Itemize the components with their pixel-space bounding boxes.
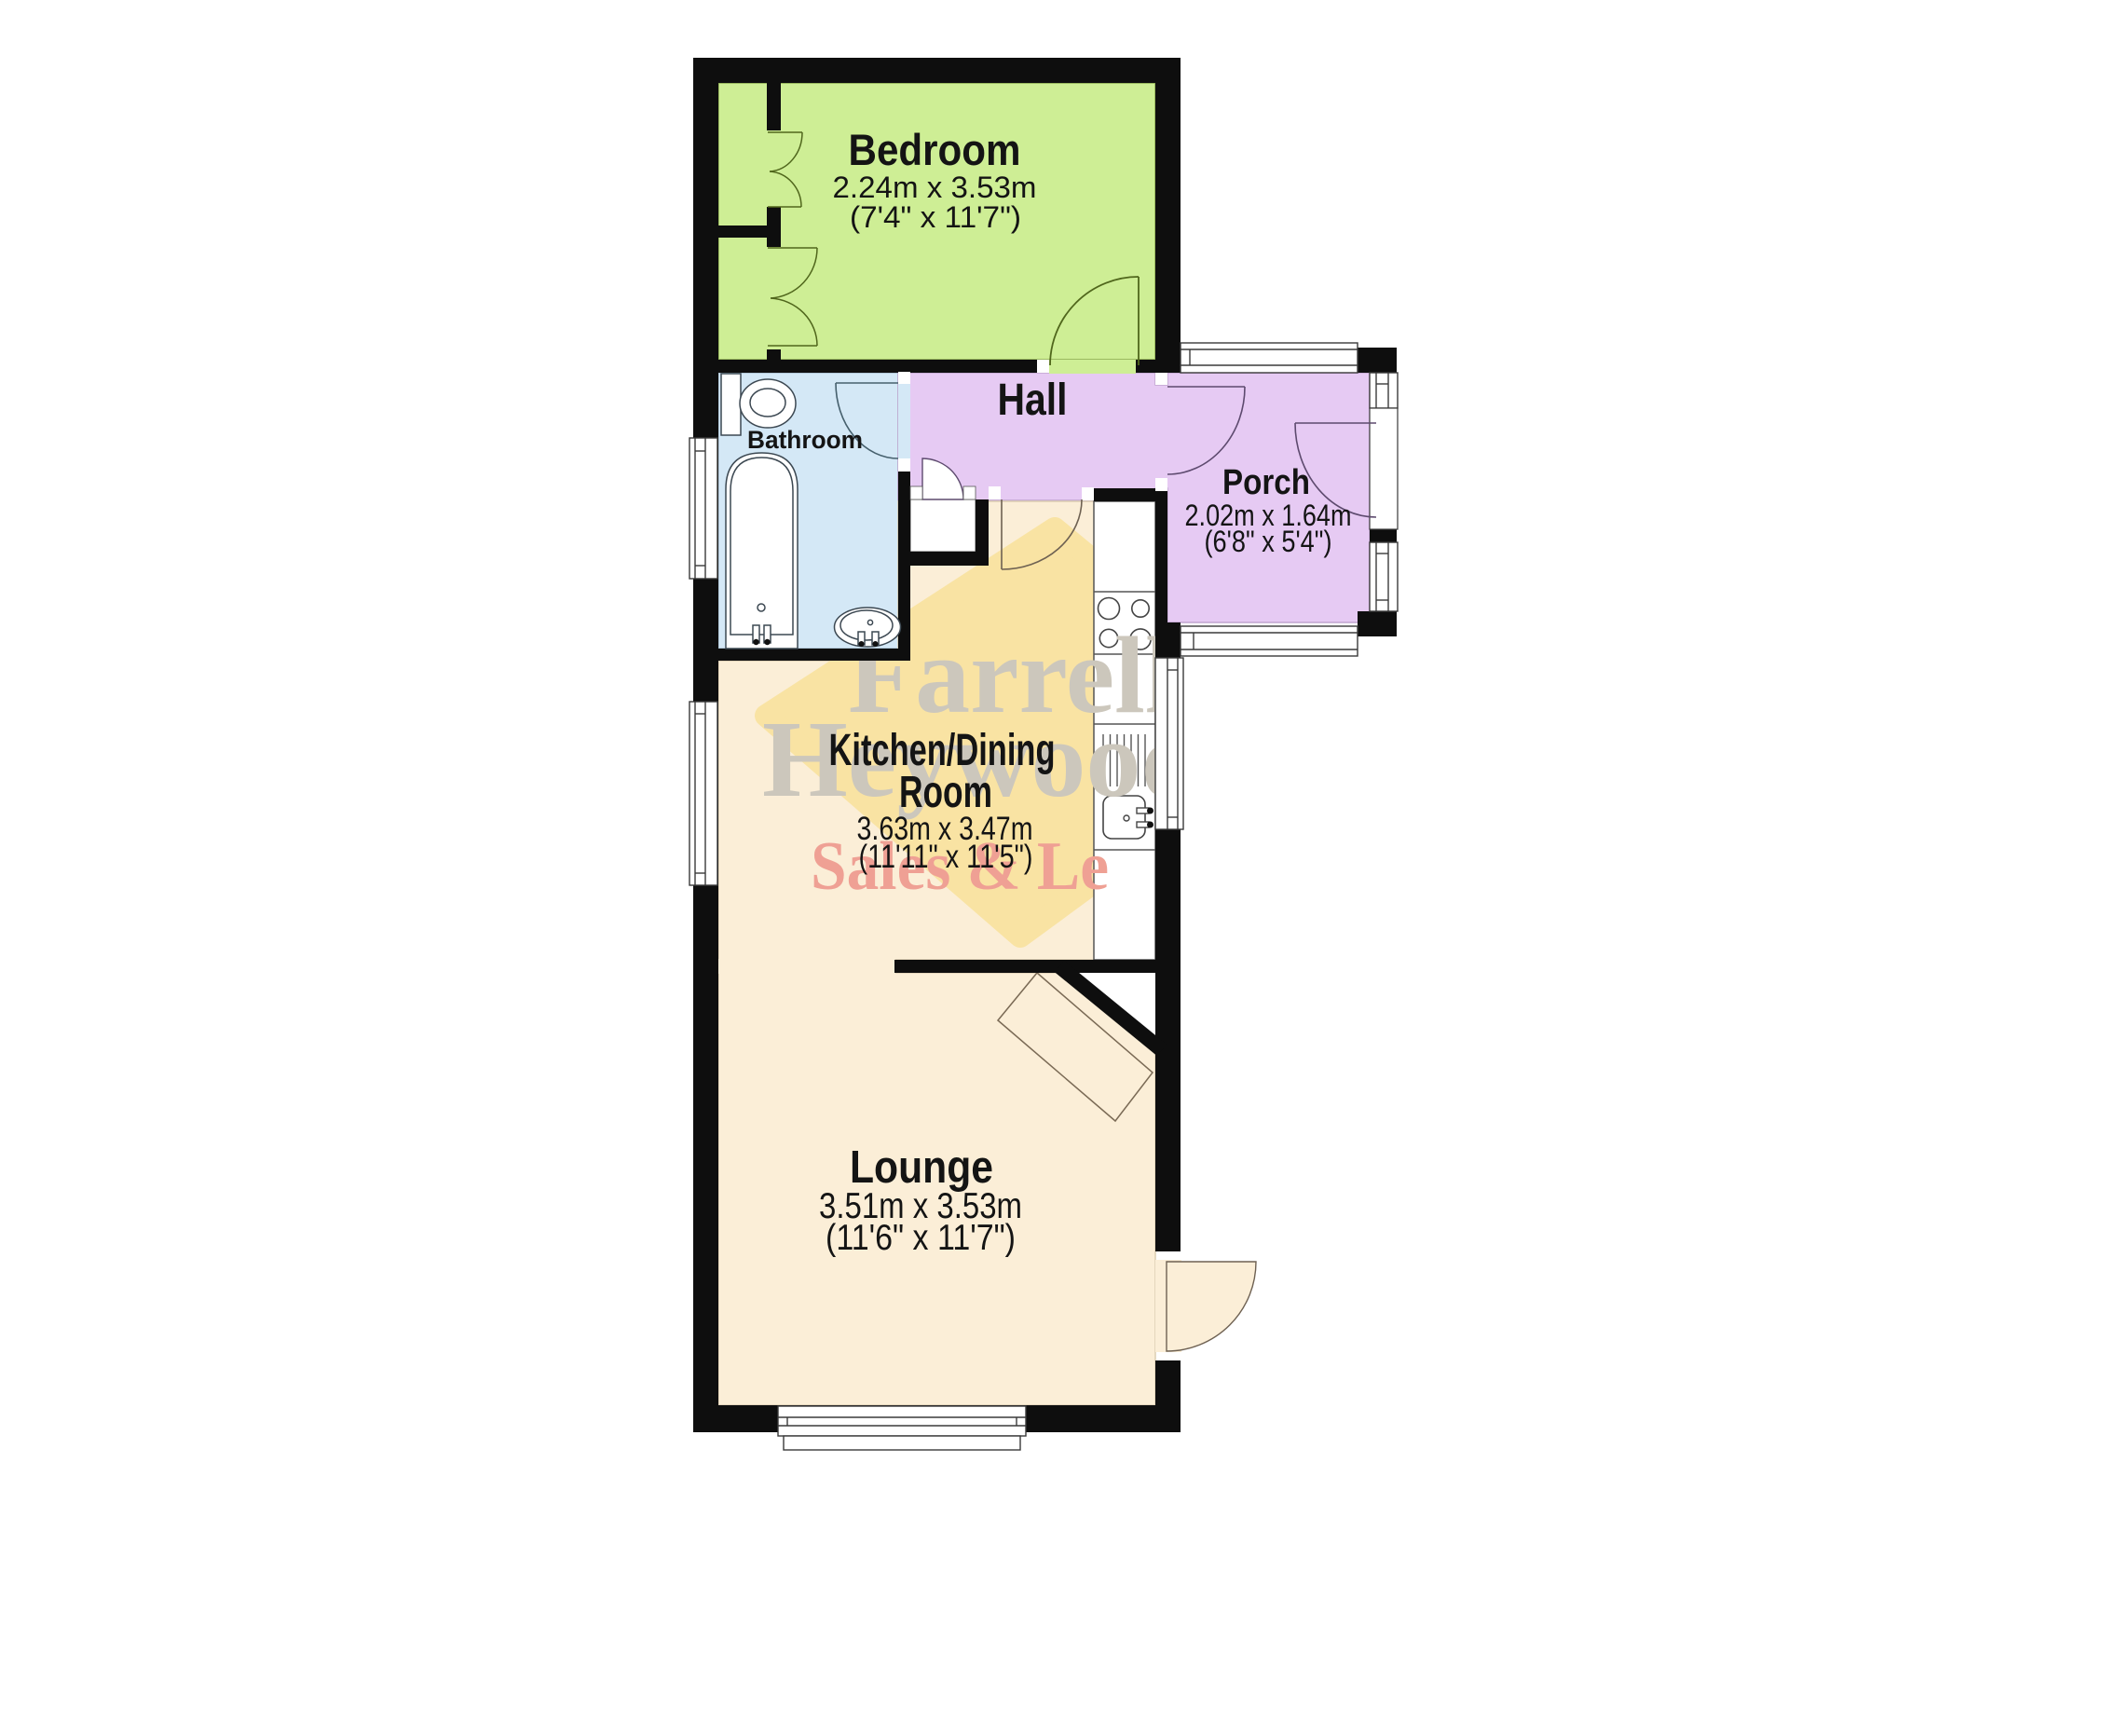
svg-text:Bedroom: Bedroom [849, 125, 1021, 174]
svg-text:Bathroom: Bathroom [747, 426, 863, 454]
svg-text:2.24m x 3.53m: 2.24m x 3.53m [833, 171, 1037, 204]
svg-text:(7'4" x 11'7"): (7'4" x 11'7") [850, 200, 1021, 234]
svg-text:Porch: Porch [1222, 463, 1310, 502]
svg-text:(11'6" x 11'7"): (11'6" x 11'7") [826, 1218, 1016, 1258]
svg-text:(6'8" x 5'4"): (6'8" x 5'4") [1205, 525, 1332, 558]
svg-text:Hall: Hall [998, 376, 1068, 425]
svg-text:(11'11" x 11'5"): (11'11" x 11'5") [859, 839, 1033, 875]
svg-text:Lounge: Lounge [850, 1142, 993, 1193]
